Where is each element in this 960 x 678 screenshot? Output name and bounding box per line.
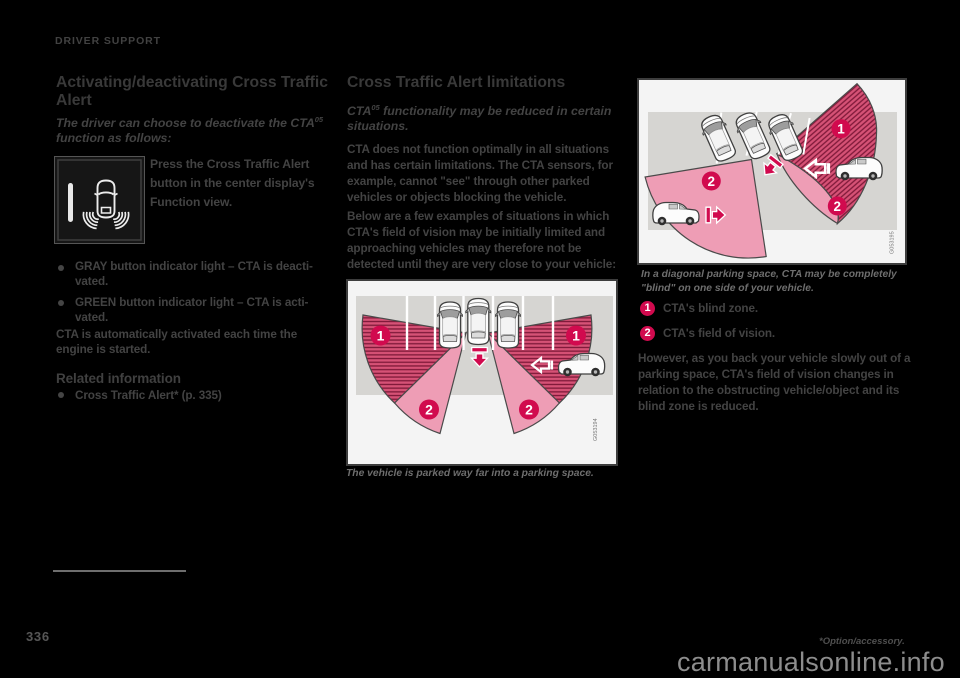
svg-text:2: 2 xyxy=(425,402,433,418)
svg-text:G053195: G053195 xyxy=(890,231,896,254)
svg-text:2: 2 xyxy=(834,199,842,214)
svg-text:1: 1 xyxy=(377,328,385,344)
svg-text:1: 1 xyxy=(572,328,580,344)
svg-text:2: 2 xyxy=(708,174,716,189)
svg-text:2: 2 xyxy=(525,402,533,418)
svg-text:G053194: G053194 xyxy=(593,418,599,441)
svg-text:1: 1 xyxy=(837,122,845,137)
